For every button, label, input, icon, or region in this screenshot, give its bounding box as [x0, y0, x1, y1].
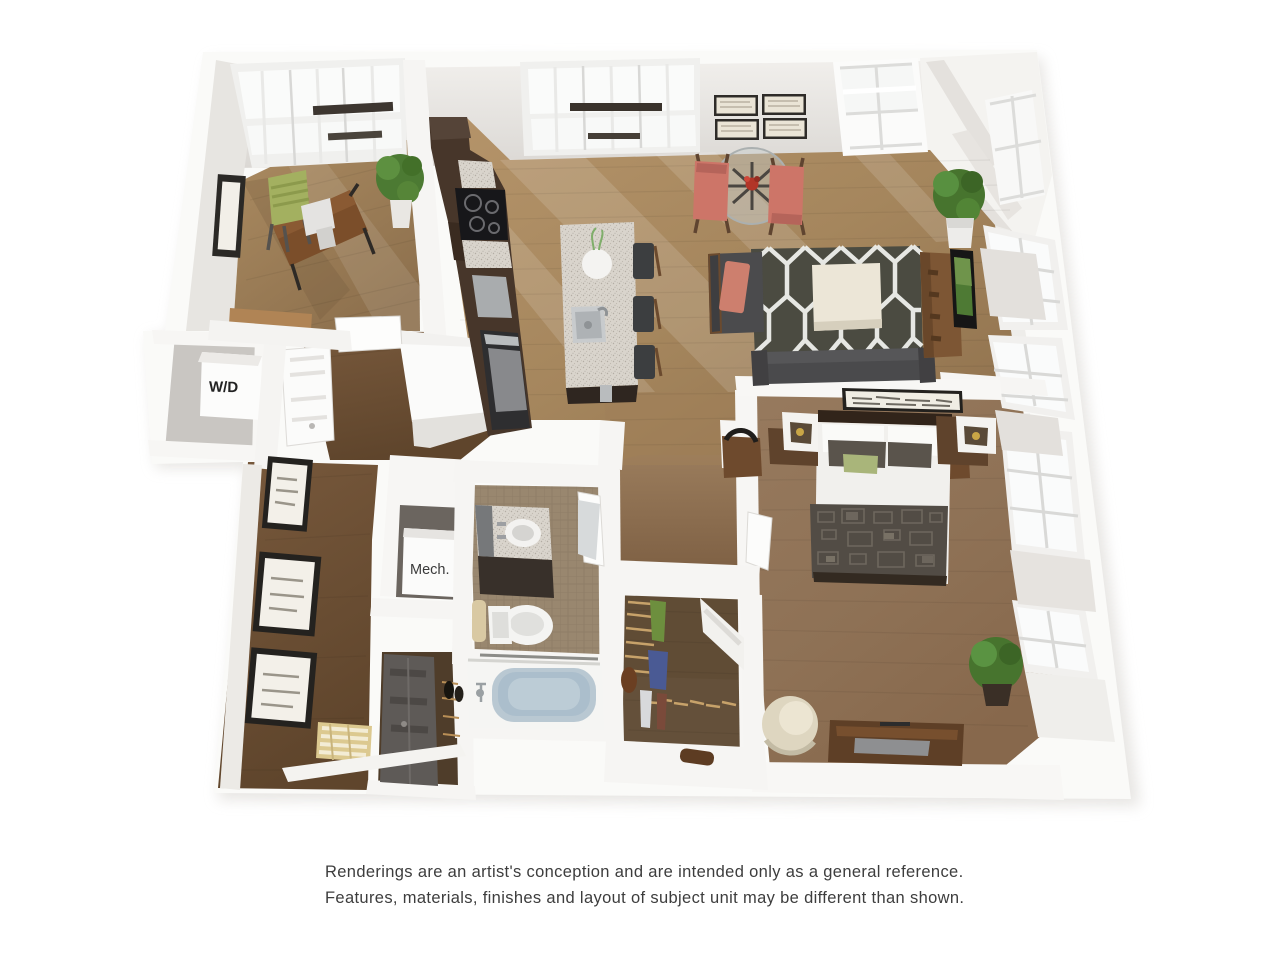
svg-text:W/D: W/D — [209, 379, 239, 397]
svg-text:Features, materials, finishes: Features, materials, finishes and layout… — [325, 889, 964, 907]
svg-text:Mech.: Mech. — [410, 562, 450, 578]
svg-text:Renderings are an artist's con: Renderings are an artist's conception an… — [325, 863, 964, 881]
